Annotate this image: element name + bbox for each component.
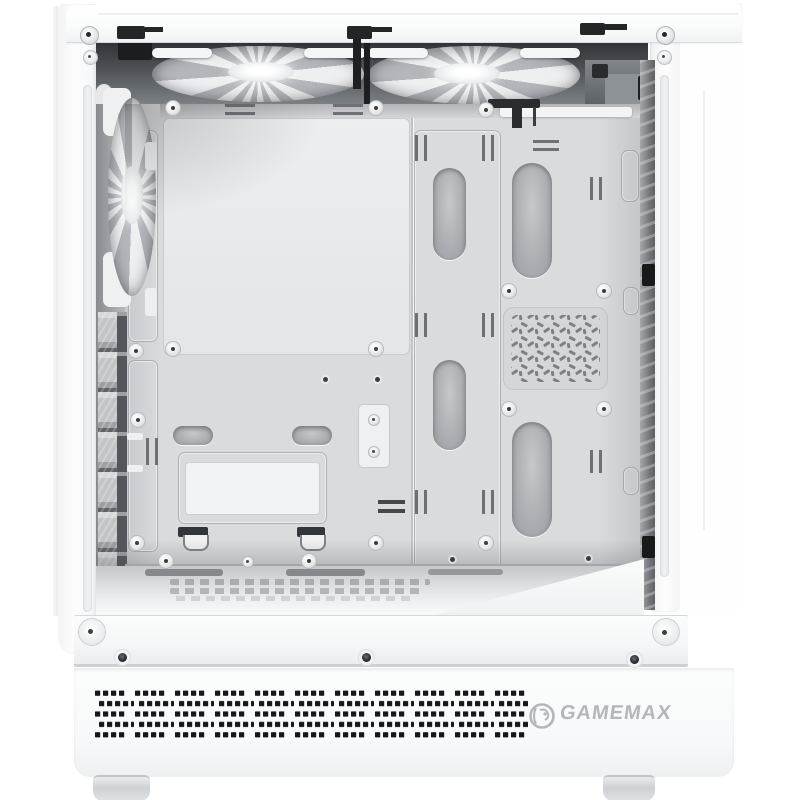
stamped-slot-v-4	[482, 313, 494, 337]
top-fan-2-hub	[434, 63, 500, 84]
screw	[368, 341, 384, 357]
floor-vent-row-3	[176, 596, 416, 601]
top-clip-right-arm	[605, 24, 627, 30]
top-clip-left	[117, 26, 145, 39]
tray-seam	[411, 118, 413, 566]
top-clip-right	[580, 23, 605, 35]
top-fan-frame-bar-3	[368, 48, 428, 58]
screw	[128, 343, 144, 359]
cable-grommet-v1	[433, 168, 466, 260]
top-fan-frame-bar-4	[520, 48, 580, 58]
right-shadow-overlay	[598, 118, 640, 566]
front-gap-clip-1	[642, 264, 655, 286]
cable-grommet-v2	[433, 360, 466, 450]
cable-rod	[533, 107, 536, 126]
screw	[130, 412, 146, 428]
floor-vent-row-1	[170, 579, 430, 585]
stamped-slot-v-5	[415, 490, 427, 514]
stamped-slot-h-3	[533, 140, 559, 151]
screw	[165, 100, 181, 116]
front-gap-clip-2	[642, 536, 655, 558]
top-interior-shadow	[96, 40, 648, 104]
rail-screw-3	[630, 655, 639, 664]
screw	[242, 556, 254, 568]
stamped-slot-v-9	[146, 438, 158, 465]
front-top-bracket-step	[605, 74, 640, 104]
hex-vent-holes	[511, 315, 600, 382]
screw	[368, 414, 380, 426]
screw	[501, 401, 517, 417]
screw	[596, 283, 612, 299]
rail-screw-2	[362, 653, 371, 662]
bottom-rail	[74, 615, 688, 667]
hex-vent	[503, 307, 608, 390]
top-fan-gap	[364, 40, 370, 104]
floor-vent-row-2	[170, 588, 420, 594]
boss-pin-left	[88, 629, 93, 634]
screw	[301, 553, 317, 569]
screw	[368, 100, 384, 116]
screw	[501, 283, 517, 299]
lion-head-icon	[527, 699, 557, 733]
stamped-slot-v-6	[482, 490, 494, 514]
top-clip-left-arm	[145, 27, 163, 32]
stamped-slot-v-3	[415, 313, 427, 337]
stamped-slot-v-2	[482, 135, 494, 161]
front-panel-edge-line	[703, 90, 705, 530]
rail-screw-1	[118, 653, 127, 662]
top-panel-inner-line	[98, 13, 738, 15]
rear-column-groove	[83, 85, 92, 612]
boss-pin-right	[662, 630, 667, 635]
floor-vent-bar-1	[145, 569, 223, 576]
side-wall-tab-2	[127, 465, 143, 472]
cable-grommet-v3	[512, 163, 552, 278]
top-panel-bar	[66, 5, 742, 43]
cable-grommet-h1	[173, 426, 213, 445]
thumbscrew-right-2	[657, 50, 672, 65]
corner-shadow-overlay	[125, 104, 355, 234]
pc-case-photo: GAMEMAX	[0, 0, 800, 800]
stamped-double-bar	[378, 500, 405, 513]
cable-grommet-h2	[292, 426, 332, 445]
screw	[478, 102, 494, 118]
floor-vent-bar-3	[428, 569, 503, 575]
top-left-cable-shadow	[118, 42, 152, 60]
top-clip-mid	[347, 26, 372, 39]
top-fan-frame-bar-1	[152, 48, 212, 58]
screw	[165, 341, 181, 357]
screw	[596, 401, 612, 417]
rear-fan-mount-tab-2	[145, 288, 157, 316]
dot-vent-field	[94, 688, 528, 740]
top-clip-mid-stem	[353, 39, 361, 89]
dust-filter-dot-vent	[94, 688, 528, 740]
top-fan-1-hub	[228, 62, 294, 82]
case-foot-right	[603, 775, 655, 800]
screw	[478, 535, 494, 551]
thumbscrew-top-left	[80, 26, 99, 45]
screw	[368, 446, 380, 458]
stamped-slot-v-1	[415, 135, 427, 161]
thumbscrew-left-2	[83, 50, 98, 65]
cable-grommet-v4	[512, 422, 552, 537]
hdd-bracket-plate	[185, 462, 320, 515]
front-gap	[640, 60, 655, 610]
screw	[158, 553, 174, 569]
front-top-socket	[592, 64, 608, 78]
thumbscrew-top-right	[656, 26, 675, 45]
cable-clip-stem	[512, 108, 522, 128]
standoff	[323, 377, 328, 382]
standoff	[375, 377, 380, 382]
standoff	[586, 556, 591, 561]
gamemax-logo-text: GAMEMAX	[558, 702, 673, 725]
front-column-groove	[660, 75, 669, 577]
floor-vent-bar-2	[286, 569, 365, 576]
standoff	[450, 557, 455, 562]
top-clip-mid-arm	[372, 27, 392, 32]
case-foot-left	[93, 775, 150, 800]
screw	[129, 535, 145, 551]
side-wall-tab-1	[127, 433, 143, 440]
screw	[368, 535, 384, 551]
